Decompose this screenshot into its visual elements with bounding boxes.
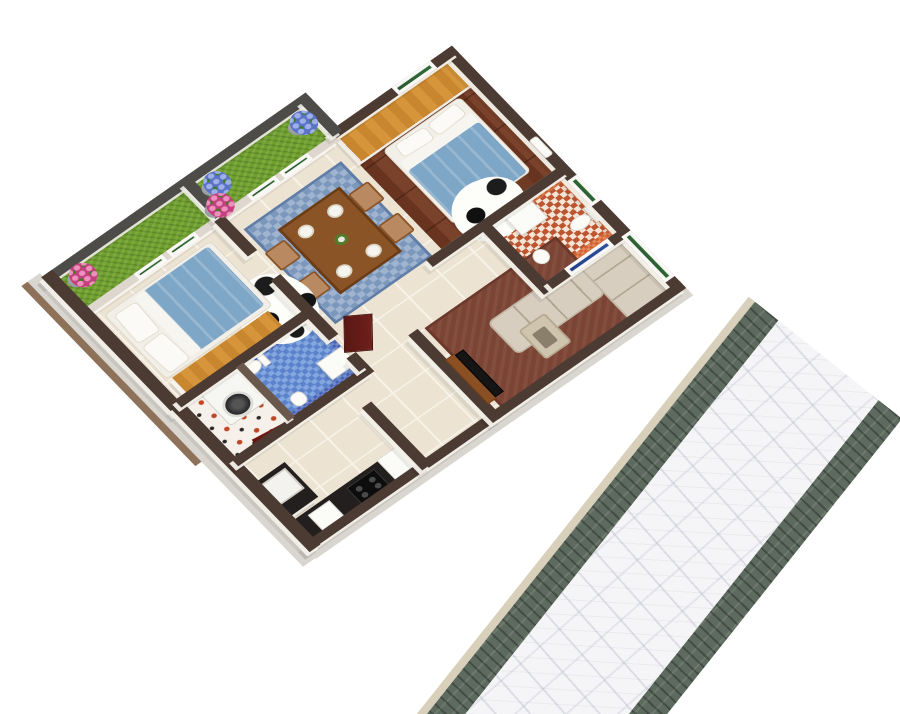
coffee-table-tray (532, 326, 558, 349)
place-setting (362, 241, 385, 260)
maroon-open-door (343, 313, 373, 352)
place-setting (294, 222, 317, 241)
place-setting (324, 201, 347, 220)
floor-plan-render (0, 0, 900, 714)
flower-centerpiece (332, 231, 351, 247)
place-setting (333, 261, 356, 280)
